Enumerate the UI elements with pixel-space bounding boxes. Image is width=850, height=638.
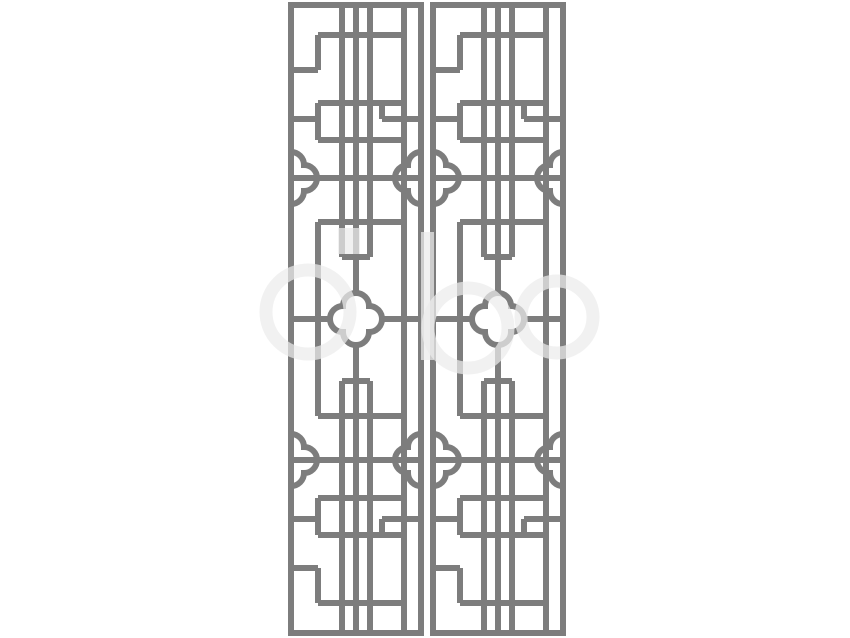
fret-gridwork: [291, 5, 421, 633]
watermark-bar-shape: [421, 232, 434, 360]
watermark-ring-shape: [428, 288, 508, 368]
watermark-bar-shape: [338, 228, 360, 254]
watermark-ring-shape: [266, 270, 350, 354]
lattice-panel-left: [291, 5, 421, 633]
lattice-panel-right: [433, 5, 563, 633]
lattice-illustration: [0, 0, 850, 638]
canvas: [0, 0, 850, 638]
fret-gridwork: [433, 5, 563, 633]
